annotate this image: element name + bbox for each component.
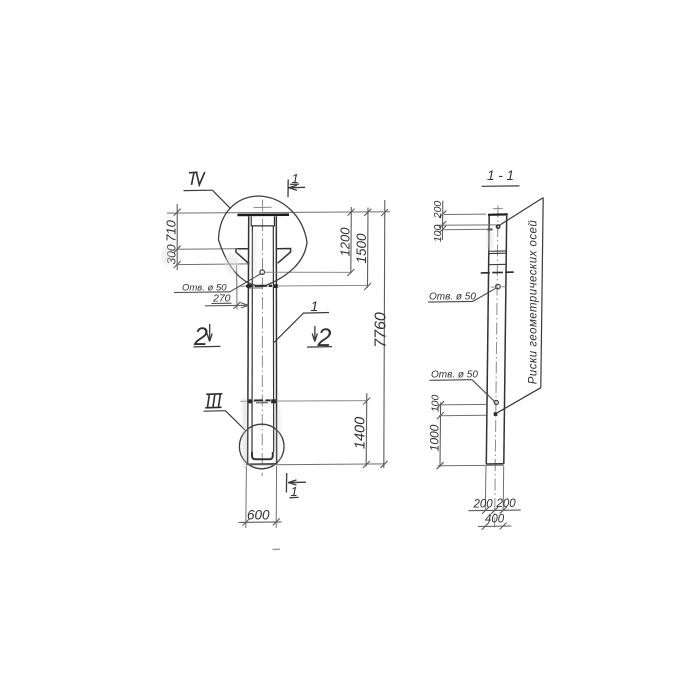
svg-text:200: 200 (432, 201, 444, 220)
svg-text:7760: 7760 (373, 312, 390, 348)
svg-text:1000: 1000 (428, 424, 442, 451)
svg-text:Отв. ø 50: Отв. ø 50 (429, 292, 476, 303)
svg-text:100: 100 (430, 394, 442, 412)
svg-text:710: 710 (164, 219, 179, 241)
svg-text:200: 200 (473, 499, 494, 511)
svg-text:200: 200 (496, 498, 517, 510)
svg-text:100: 100 (432, 224, 444, 242)
svg-text:1: 1 (291, 484, 298, 499)
svg-text:1500: 1500 (354, 233, 369, 264)
svg-text:1200: 1200 (338, 227, 353, 257)
svg-text:Отв. ø 50: Отв. ø 50 (431, 370, 478, 381)
svg-text:2: 2 (317, 324, 332, 352)
svg-text:600: 600 (247, 508, 270, 523)
svg-text:1 - 1: 1 - 1 (487, 168, 514, 183)
svg-text:270: 270 (212, 293, 231, 305)
svg-text:Риски геометрических осей: Риски геометрических осей (528, 220, 540, 385)
svg-text:1: 1 (311, 298, 319, 314)
svg-text:1400: 1400 (353, 417, 369, 449)
svg-text:400: 400 (485, 514, 505, 526)
svg-text:1: 1 (292, 171, 299, 186)
